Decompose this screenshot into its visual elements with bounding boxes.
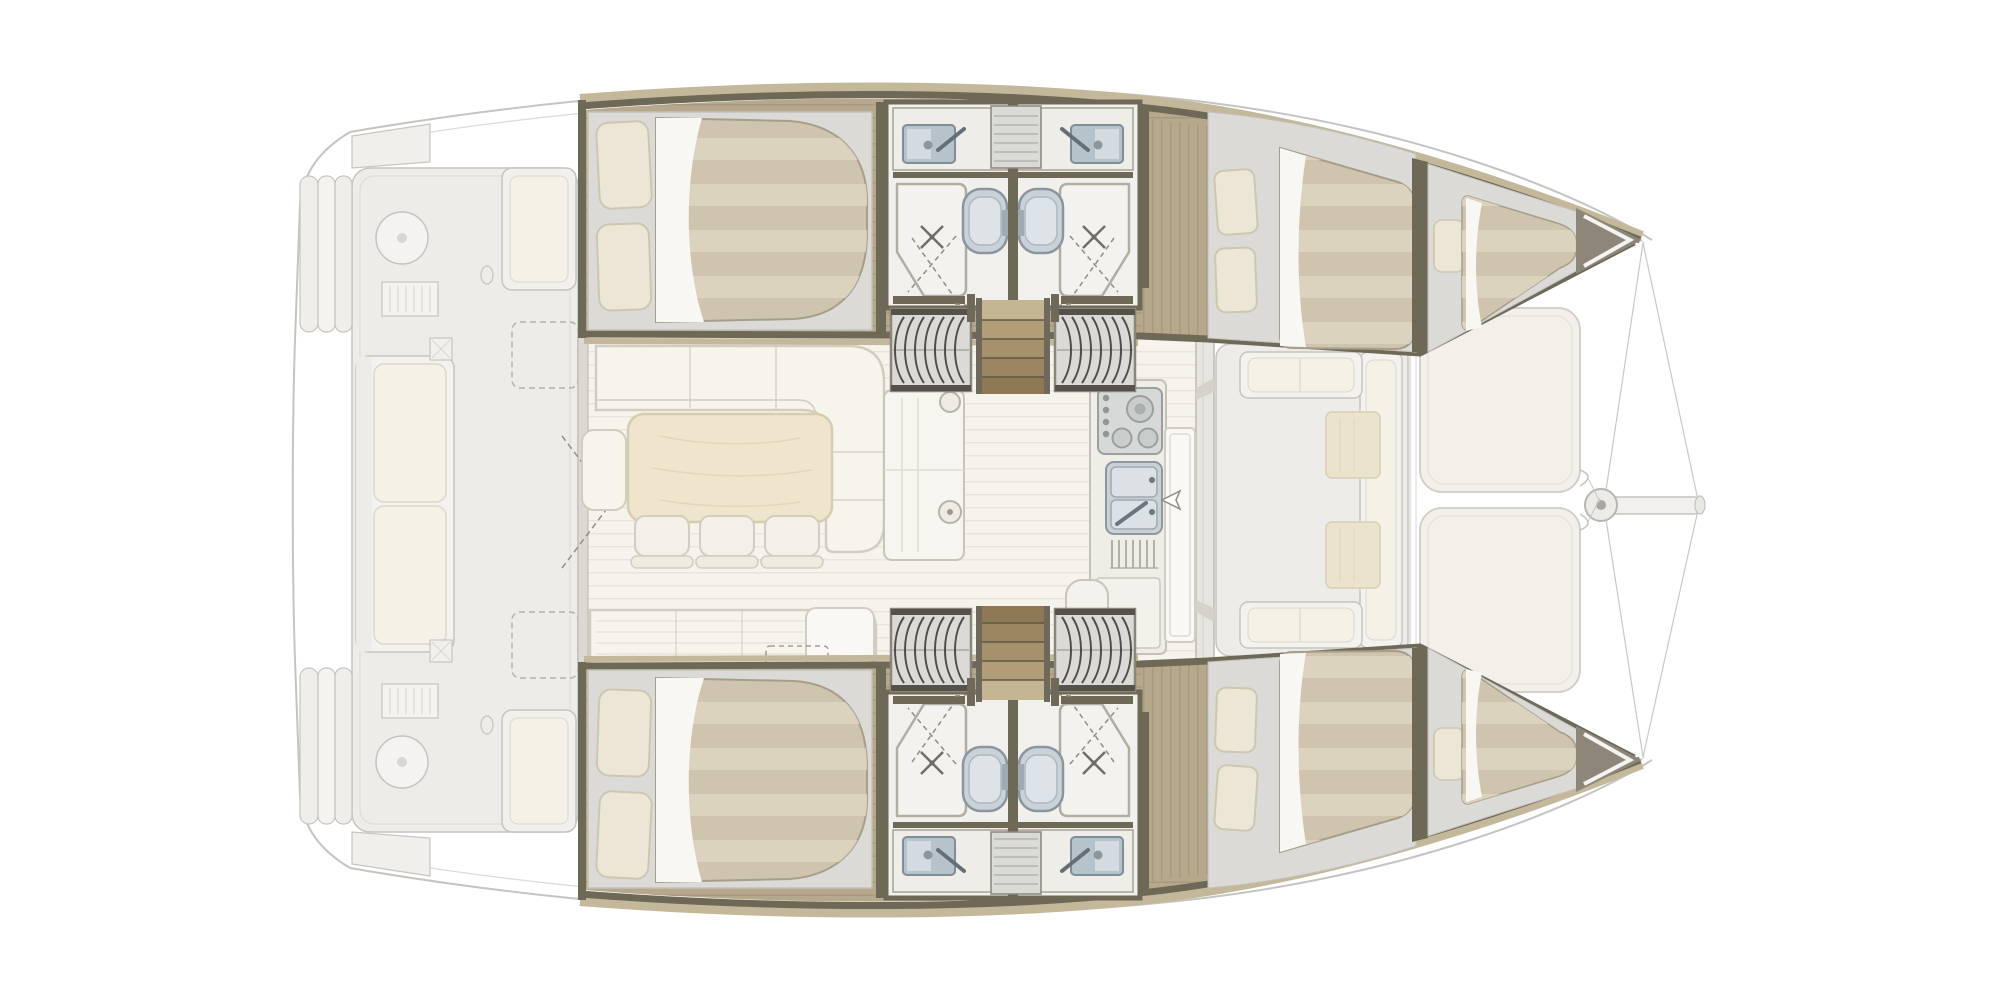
sideboard-cabinet [884,390,964,560]
bench-cushion [374,506,446,644]
cabinet-knob [940,392,960,412]
stair-rail [976,298,982,394]
toilet [963,189,1010,253]
forward-door [1162,428,1195,642]
bowsprit-end-cap [1695,496,1705,514]
burner [1113,429,1132,448]
stool [631,516,693,568]
aft-cockpit-bench-sofa [356,356,454,652]
u-bench-back-cushion [1366,360,1396,640]
bench-backrest [356,356,372,652]
galley-stove [1098,388,1162,454]
stair-tread [982,339,1044,358]
cocktail-table [1326,522,1380,588]
pillow [1434,220,1464,272]
central-vanity-hatch [991,106,1041,168]
stair-tread [982,300,1044,320]
salon-front-wall [1196,336,1214,664]
deck-fitting [430,338,452,360]
stool [696,516,758,568]
dining-table [628,414,832,522]
bathroom-aft-wall [893,296,965,304]
forepeak-bulkhead [1412,158,1428,352]
pillow [597,223,652,311]
stair-tread [982,358,1044,377]
burner-center [1135,404,1146,415]
bench-cushion [374,364,446,502]
companionway-stairs [967,294,1059,394]
cocktail-table [1326,412,1380,478]
transom-steps [300,176,352,332]
pillow [1214,169,1258,236]
pillow [596,121,652,210]
toilet-bowl [969,197,1001,245]
double-bed-duvet [656,118,867,322]
helm-circle-hub [397,233,407,243]
lashing-cleat [1580,470,1588,486]
cabinet-knob-dot [947,509,953,515]
drain-dot [930,235,935,240]
stair-tread [982,377,1044,394]
forward-cabin-floor-planks [1142,118,1208,338]
catamaran-floorplan [0,0,2000,1000]
cabin-aft-wall [1140,106,1149,288]
bowsprit-assembly [1585,243,1705,757]
end-seat [582,430,626,510]
burner [1139,429,1158,448]
cockpit-lounge-module [502,168,576,290]
pillow [1215,247,1257,312]
faucet-base [924,141,933,150]
grill-locker [382,282,438,316]
tambour-stair-cover [891,309,971,391]
floorplan-canvas [0,0,2000,1000]
vanity-partition [893,172,1008,178]
u-bench-arm [1240,352,1362,398]
aft-double-cabin [588,102,886,336]
tambour-stair-cover-mirror [1055,309,1135,391]
anchor-roller-pin [1596,500,1606,510]
galley-sink [1106,462,1162,534]
dining-stools [631,516,823,568]
stair-tread [982,320,1044,339]
aft-cabin-bulkhead [578,100,586,338]
stool [761,516,823,568]
stair-rail [1044,298,1050,394]
